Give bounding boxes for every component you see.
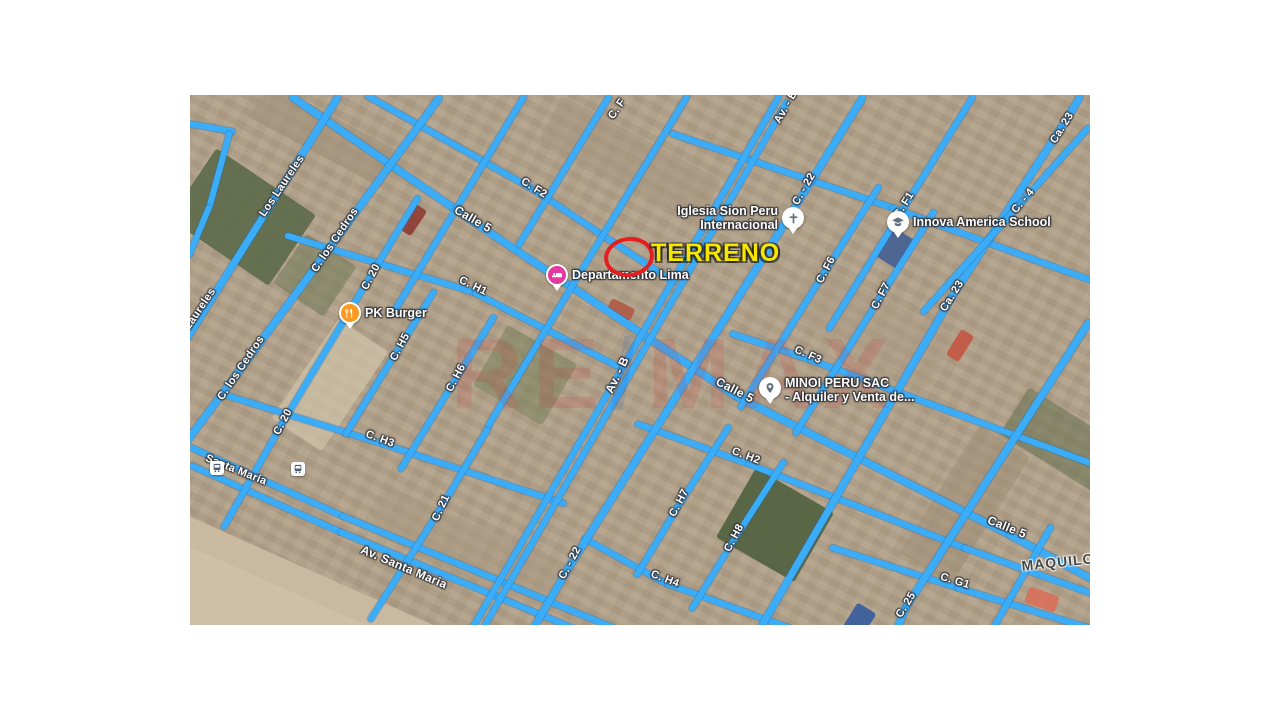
page: RE/MAX Los LaurelesLaurelesC. los Cedros… — [0, 0, 1280, 720]
terreno-label: TERRENO — [651, 239, 780, 268]
annotation-layer: TERRENO — [190, 95, 1090, 625]
terreno-circle-annotation — [601, 234, 656, 281]
map-canvas[interactable]: RE/MAX Los LaurelesLaurelesC. los Cedros… — [190, 95, 1090, 625]
